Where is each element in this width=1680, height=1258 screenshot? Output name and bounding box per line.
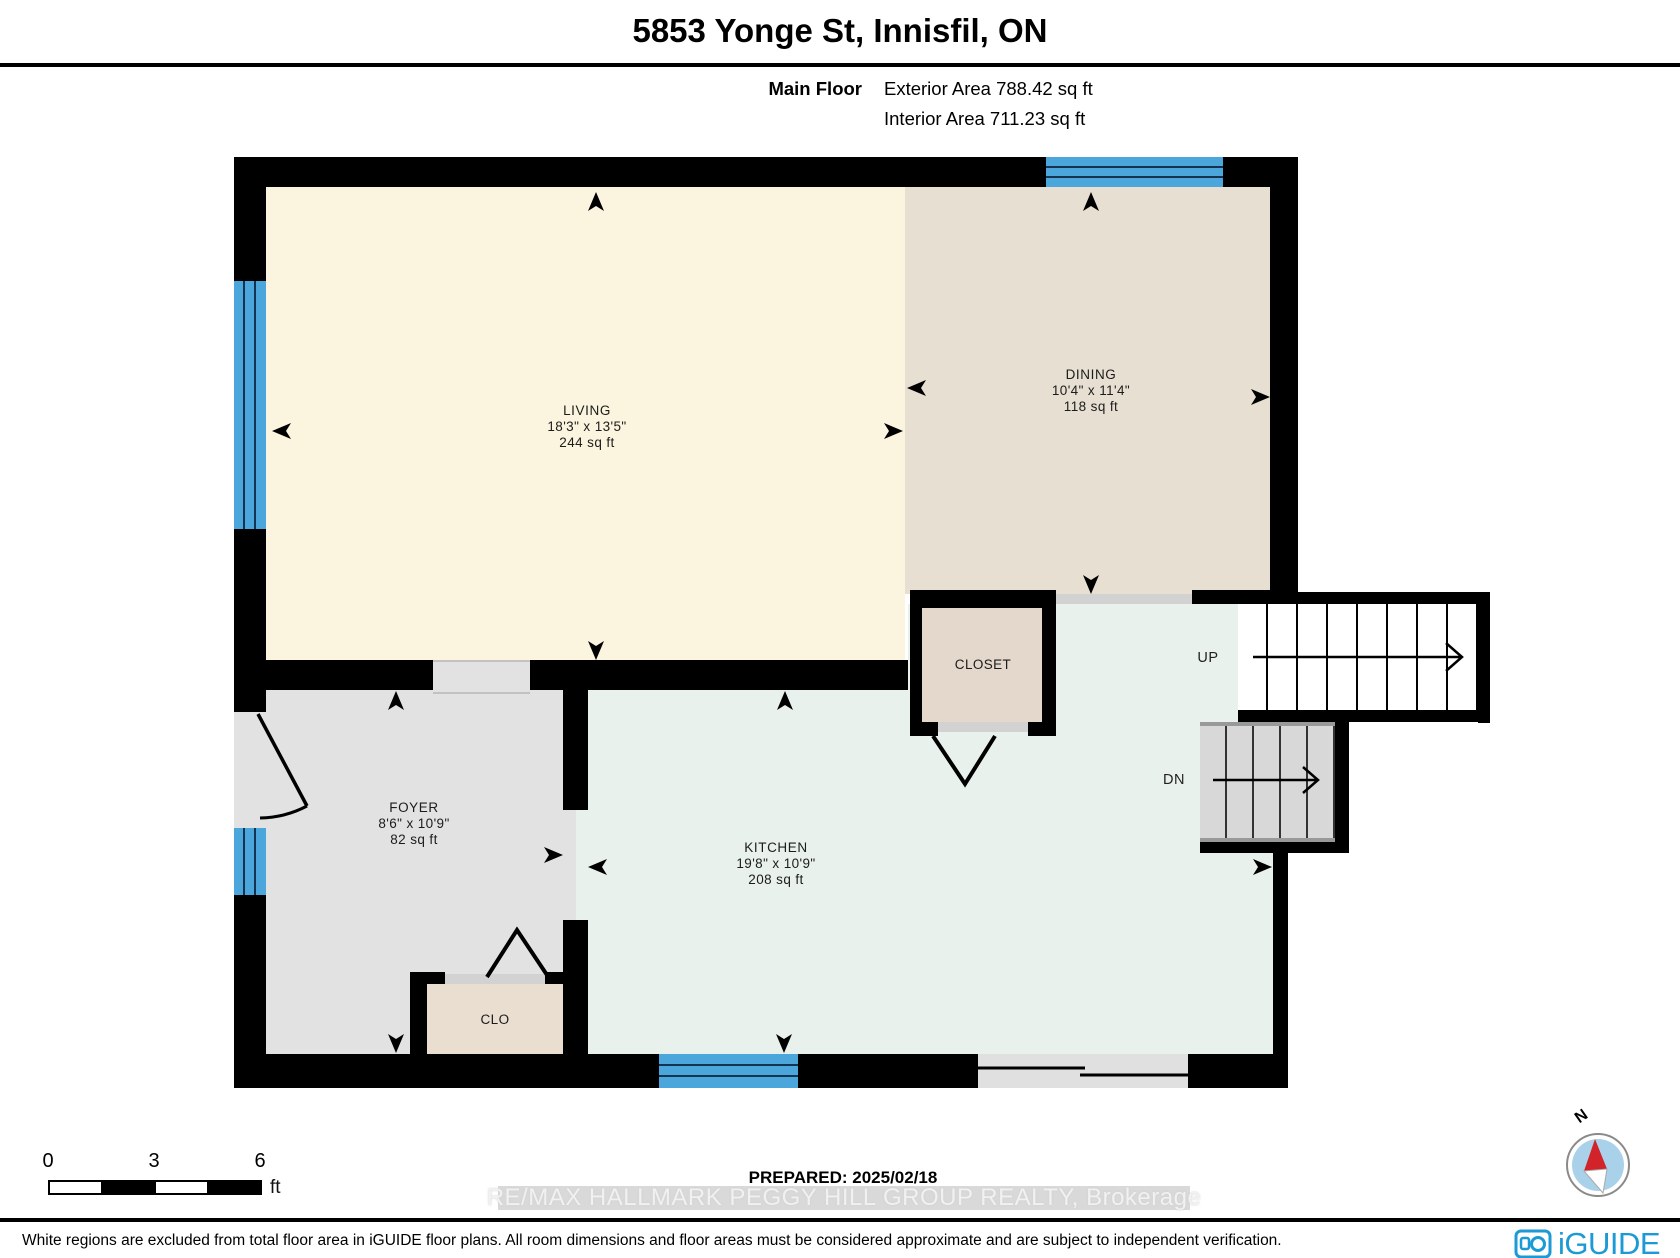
arrow-down-icon (388, 1034, 404, 1053)
arrow-down-icon (588, 641, 604, 660)
closet-wall-bottom-right (1028, 722, 1056, 736)
wall-foyer-kitchen-upper (563, 660, 588, 810)
clo-wall-left (410, 972, 427, 1054)
arrow-left-icon (588, 859, 607, 875)
foyer-kitchen-opening-right (576, 810, 588, 920)
iguide-logo-icon (1514, 1229, 1552, 1258)
foyer-kitchen-opening-left (563, 810, 576, 920)
stairs-up-wall-top (1192, 592, 1490, 604)
arrow-right-icon (884, 423, 903, 439)
arrow-left-icon (907, 380, 926, 396)
scale-tick-0: 0 (42, 1150, 53, 1173)
stairs-up-label: UP (1197, 650, 1218, 666)
stairs-up-treads (1238, 604, 1478, 710)
living-foyer-opening (433, 660, 530, 694)
header-divider (0, 63, 1680, 67)
prepared-date: PREPARED: 2025/02/18 (749, 1168, 938, 1188)
arrow-right-icon (1253, 859, 1272, 875)
wall-bottom-2 (798, 1054, 978, 1088)
window-top-icon (1046, 157, 1223, 187)
kitchen-label: KITCHEN 19'8" x 10'9" 208 sq ft (736, 840, 815, 888)
footer-divider (0, 1218, 1680, 1222)
closet-wall-top (910, 590, 1056, 608)
arrow-right-icon (544, 847, 563, 863)
window-left-lower-icon (234, 828, 266, 895)
closet-wall-left (910, 590, 922, 736)
foyer-label: FOYER 8'6" x 10'9" 82 sq ft (378, 800, 449, 848)
stairs-up-wall-right (1478, 592, 1490, 723)
wall-right-lower (1273, 852, 1288, 1088)
disclaimer-text: White regions are excluded from total fl… (22, 1232, 1282, 1250)
clo-label: CLO (481, 1012, 510, 1028)
wall-bottom-1 (234, 1054, 659, 1088)
arrow-up-icon (588, 192, 604, 211)
iguide-logo: iGUIDE (1514, 1226, 1660, 1258)
wall-living-foyer-1 (234, 660, 433, 690)
window-bottom-icon (659, 1054, 798, 1088)
clo-wall-top-right (545, 972, 563, 984)
watermark-band: RE/MAX HALLMARK PEGGY HILL GROUP REALTY,… (498, 1186, 1190, 1210)
clo-threshold (445, 974, 545, 984)
stairs-up-wall-bottom (1238, 710, 1490, 722)
closet-wall-bottom-left (910, 722, 938, 736)
scale-tick-3: 3 (148, 1150, 159, 1173)
watermark-text: RE/MAX HALLMARK PEGGY HILL GROUP REALTY,… (487, 1184, 1202, 1212)
window-left-upper-icon (234, 281, 266, 529)
floor-label: Main Floor (700, 78, 862, 100)
closet-threshold (938, 722, 1028, 732)
wall-right-upper (1270, 157, 1298, 604)
dining-label: DINING 10'4" x 11'4" 118 sq ft (1052, 367, 1130, 415)
wall-top-left (234, 157, 1046, 187)
front-door-opening (234, 712, 266, 828)
compass-icon (1564, 1129, 1634, 1201)
iguide-logo-text: iGUIDE (1558, 1226, 1660, 1258)
stairs-dn-wall-bottom (1200, 842, 1349, 853)
living-label: LIVING 18'3" x 13'5" 244 sq ft (547, 403, 626, 451)
stairs-dn-treads (1200, 726, 1335, 838)
exterior-area: Exterior Area 788.42 sq ft (884, 78, 1093, 100)
arrow-up-icon (1083, 192, 1099, 211)
scale-unit: ft (270, 1177, 281, 1199)
arrow-down-icon (776, 1034, 792, 1053)
closet-wall-right (1042, 590, 1056, 736)
arrow-up-icon (777, 691, 793, 710)
sliding-door-icon (978, 1054, 1188, 1088)
stairs-dn-wall-right (1335, 722, 1349, 842)
arrow-down-icon (1083, 575, 1099, 594)
scale-tick-6: 6 (254, 1150, 265, 1173)
dining-kitchen-threshold (1056, 594, 1192, 604)
scale-bar (48, 1180, 262, 1195)
stairs-dn-label: DN (1163, 772, 1185, 788)
wall-foyer-kitchen-lower (563, 920, 588, 1054)
floorplan-page: 5853 Yonge St, Innisfil, ON Main Floor E… (0, 0, 1680, 1258)
compass-north-label: N (1572, 1106, 1592, 1127)
wall-left-1 (234, 187, 266, 281)
arrow-left-icon (272, 423, 291, 439)
arrow-up-icon (388, 691, 404, 710)
interior-area: Interior Area 711.23 sq ft (884, 108, 1085, 130)
page-title: 5853 Yonge St, Innisfil, ON (0, 12, 1680, 50)
arrow-right-icon (1251, 389, 1270, 405)
closet-label: CLOSET (955, 657, 1011, 673)
